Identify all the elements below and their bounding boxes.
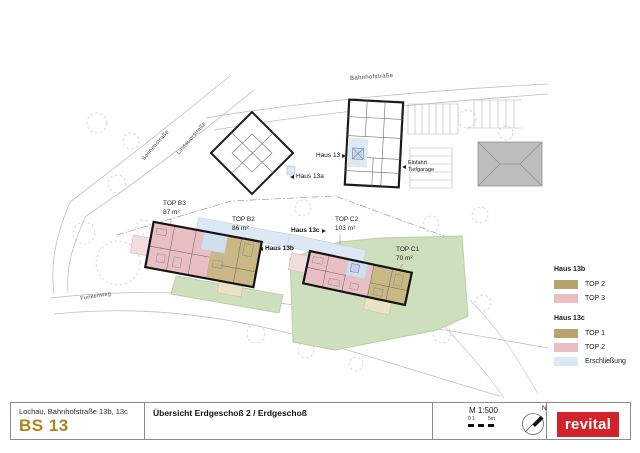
legend-label: Erschließung [585,358,626,365]
title-block-project-cell: Lochau, Bahnhofstraße 13b, 13c BS 13 [11,403,145,439]
legend-group-title: Haus 13b [554,266,640,273]
title-block-sheet-cell: Übersicht Erdgeschoß 2 / Erdgeschoß [144,403,433,439]
legend-label: TOP 2 [585,344,605,351]
unit-name: TOP B3 [163,200,186,207]
title-block-scale-cell: M 1:500 0 1 5m N [432,403,547,439]
unit-area: 103 m² [335,224,358,233]
haus-13a-label-text: Haus 13a [296,173,324,180]
revital-logo-text: revital [565,416,611,433]
unit-name: TOP C1 [396,246,419,253]
project-code: BS 13 [19,416,69,436]
garage-entry-label: Einfahrt Tiefgarage [402,160,434,173]
unit-name: TOP C2 [335,216,358,223]
unit-area: 86 m² [232,224,255,233]
haus-13-plan [345,100,403,188]
scalebar-number-right: 5m [488,416,495,422]
legend-label: TOP 3 [585,295,605,302]
revital-logo: revital [557,412,619,437]
unit-area: 87 m² [163,208,186,217]
haus-13-label-text: Haus 13 [316,152,340,159]
arrow-right-icon [322,229,326,233]
scalebar [468,424,494,427]
title-block: Lochau, Bahnhofstraße 13b, 13c BS 13 Übe… [10,402,631,440]
unit-area: 70 m² [396,254,419,263]
scalebar-number-left: 0 1 [468,416,475,422]
haus-13a-plan [211,112,295,194]
unit-label-top-c2: TOP C2 103 m² [335,215,358,233]
haus-13b-label: Haus 13b [259,245,294,252]
legend-swatch-tan [554,329,578,338]
legend-row: TOP 3 [554,291,640,305]
legend-label: TOP 2 [585,281,605,288]
haus-13c-label: Haus 13c [291,227,326,234]
haus-13a-label: Haus 13a [290,173,324,180]
legend: Haus 13b TOP 2 TOP 3 Haus 13c TOP 1 TOP … [554,266,640,368]
haus-13-label: Haus 13 [316,152,346,159]
project-address: Lochau, Bahnhofstraße 13b, 13c [19,407,128,416]
plan-sheet: Bahnhofstraße Sonnenstraße Lindauerstraß… [0,0,640,453]
unit-label-top-b3: TOP B3 87 m² [163,199,186,217]
title-block-logo-cell: revital [546,403,630,439]
sheet-title: Übersicht Erdgeschoß 2 / Erdgeschoß [153,408,307,418]
haus-13c-label-text: Haus 13c [291,227,320,234]
arrow-left-icon [402,165,406,169]
legend-row: TOP 2 [554,340,640,354]
existing-building [478,142,542,186]
legend-swatch-pink [554,294,578,303]
legend-swatch-pink [554,343,578,352]
garage-entry-line2: Tiefgarage [408,167,434,174]
haus-13b-label-text: Haus 13b [265,245,294,252]
legend-swatch-blue [554,357,578,366]
legend-row: TOP 2 [554,277,640,291]
legend-row: TOP 1 [554,326,640,340]
scale-text: M 1:500 [469,406,498,415]
arrow-left-icon [259,247,263,251]
arrow-left-icon [290,175,294,179]
legend-swatch-tan [554,280,578,289]
legend-group-title: Haus 13c [554,315,640,322]
unit-label-top-b2: TOP B2 86 m² [232,215,255,233]
legend-row: Erschließung [554,354,640,368]
unit-name: TOP B2 [232,216,255,223]
unit-label-top-c1: TOP C1 70 m² [396,245,419,263]
legend-label: TOP 1 [585,330,605,337]
arrow-right-icon [342,154,346,158]
